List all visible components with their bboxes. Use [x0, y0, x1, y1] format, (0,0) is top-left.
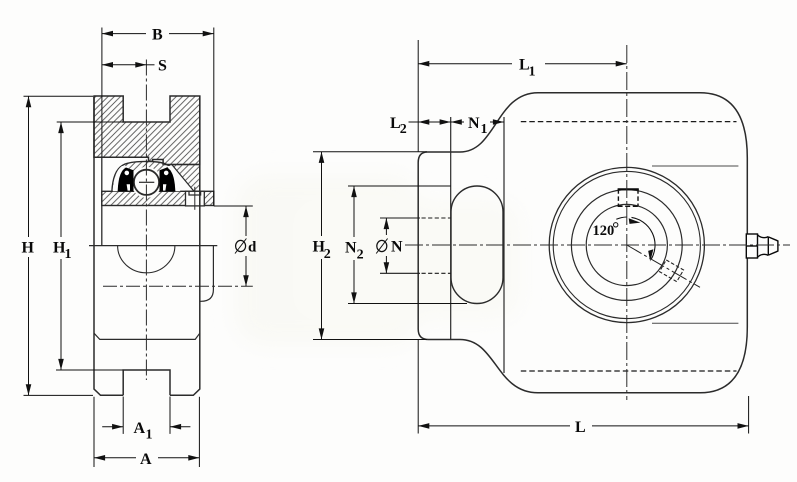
svg-text:L: L [575, 419, 586, 436]
svg-text:1: 1 [529, 65, 536, 80]
svg-text:S: S [158, 58, 167, 75]
svg-text:120: 120 [593, 223, 615, 239]
svg-text:A: A [140, 451, 152, 468]
svg-text:2: 2 [324, 247, 331, 262]
svg-text:N: N [468, 115, 480, 132]
svg-text:d: d [248, 240, 257, 256]
svg-text:B: B [152, 27, 163, 44]
svg-text:2: 2 [357, 248, 364, 263]
svg-text:1: 1 [481, 122, 488, 137]
svg-text:1: 1 [146, 428, 153, 443]
svg-text:2: 2 [400, 122, 407, 137]
svg-text:N: N [391, 239, 403, 256]
svg-text:1: 1 [65, 247, 72, 262]
svg-text:A: A [134, 420, 146, 437]
svg-text:H: H [22, 240, 35, 257]
svg-text:N: N [345, 240, 357, 257]
